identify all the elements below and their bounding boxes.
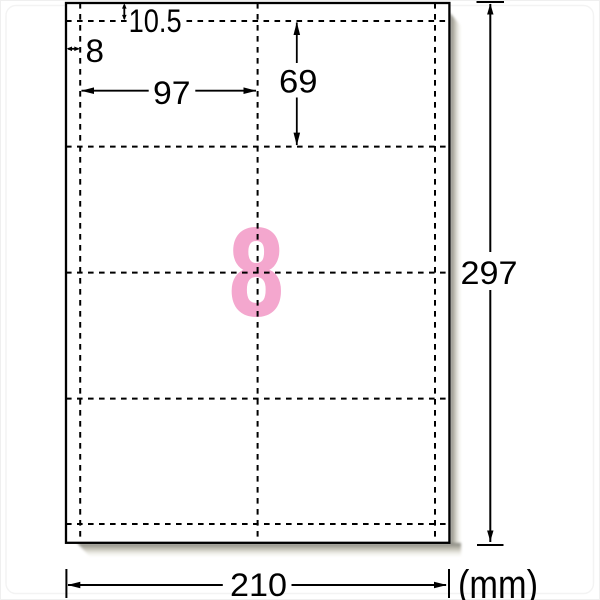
svg-text:210: 210 — [230, 567, 287, 600]
svg-text:297: 297 — [461, 255, 518, 291]
svg-text:10.5: 10.5 — [129, 3, 182, 39]
svg-text:8: 8 — [86, 33, 105, 69]
svg-text:(mm): (mm) — [458, 563, 538, 600]
svg-text:97: 97 — [153, 75, 191, 111]
svg-text:69: 69 — [279, 64, 318, 100]
